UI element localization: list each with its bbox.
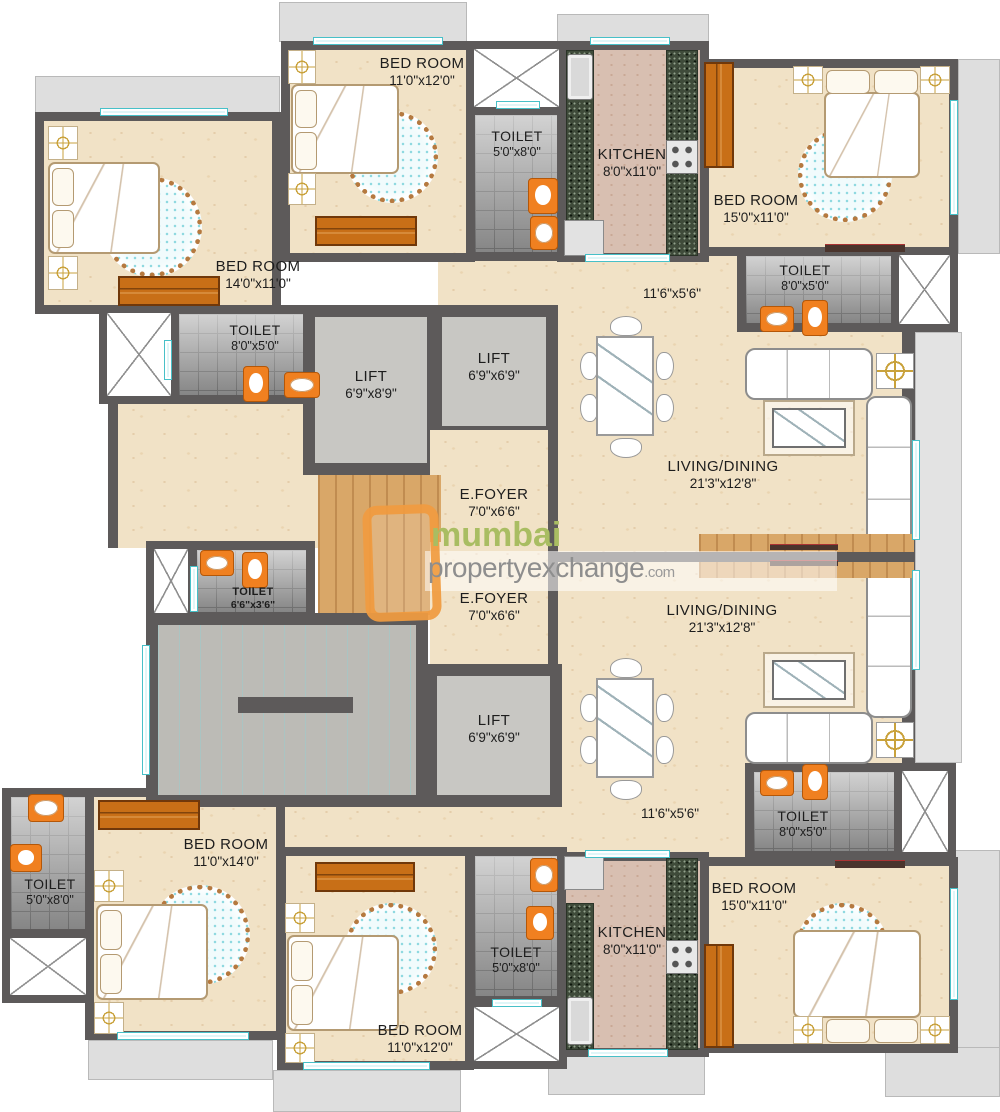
room-dim: 8'0"x5'0": [229, 339, 280, 354]
room-name: TOILET: [491, 128, 542, 145]
label-bedroom-top-right: BED ROOM 15'0"x11'0": [714, 192, 799, 226]
dining-chair: [610, 316, 642, 336]
label-passage-bottom: 11'6"x5'6": [641, 806, 699, 822]
watermark-tld: .com: [644, 564, 675, 581]
dining-table: [596, 336, 654, 436]
label-toilet-bottom-middle: TOILET 5'0"x8'0": [490, 944, 541, 975]
watermark-brand: mumbai: [431, 516, 561, 555]
room-name: TOILET: [777, 808, 828, 825]
label-bedroom-bottom-right: BED ROOM 15'0"x11'0": [712, 880, 797, 914]
label-living-top: LIVING/DINING 21'3"x12'8": [667, 458, 778, 492]
washbasin-icon: [530, 858, 558, 892]
pillow: [826, 70, 870, 94]
label-toilet-top: TOILET 5'0"x8'0": [491, 128, 542, 159]
dining-chair: [656, 352, 674, 380]
room-name: TOILET: [229, 322, 280, 339]
label-bedroom-bottom-left: BED ROOM 11'0"x14'0": [184, 836, 269, 870]
label-toilet-left: TOILET 8'0"x5'0": [229, 322, 280, 353]
corridor-top-entry: [438, 254, 563, 312]
bedside-table: [920, 66, 950, 94]
window: [117, 1032, 249, 1040]
pillow: [291, 941, 313, 981]
balcony-kitchen-bottom: [548, 1053, 705, 1095]
window: [950, 888, 958, 1000]
label-lift-c: LIFT 6'9"x6'9": [468, 712, 520, 746]
wc-icon: [528, 178, 558, 214]
room-dim: 6'9"x6'9": [468, 368, 520, 384]
wc-icon: [802, 764, 828, 800]
label-kitchen-top: KITCHEN 8'0"x11'0": [598, 146, 667, 180]
pillow: [52, 210, 74, 248]
stove-icon: [666, 140, 698, 174]
pillow: [295, 90, 317, 128]
label-kitchen-bottom: KITCHEN 8'0"x11'0": [598, 924, 667, 958]
window: [496, 101, 540, 109]
bedside-table: [94, 1002, 124, 1034]
bedside-table: [920, 1016, 950, 1044]
double-bed: [824, 92, 920, 178]
label-efoyer-bottom: E.FOYER 7'0"x6'6": [460, 590, 529, 624]
tv-unit: [835, 860, 905, 868]
wardrobe: [704, 62, 734, 168]
room-dim: 6'9"x8'9": [345, 386, 397, 402]
floor-plan: BED ROOM 11'0"x12'0" TOILET 5'0"x8'0" KI…: [0, 0, 1000, 1112]
sofa: [866, 396, 912, 552]
room-dim: 21'3"x12'8": [666, 620, 777, 636]
room-dim: 5'0"x8'0": [491, 145, 542, 160]
label-toilet-top-right: TOILET 8'0"x5'0": [779, 262, 830, 293]
tv-unit-top: [770, 544, 838, 550]
window: [313, 37, 443, 45]
wc-icon: [10, 844, 42, 872]
room-dim: 5'0"x8'0": [24, 893, 75, 908]
window: [585, 254, 670, 262]
label-bedroom-top-left: BED ROOM 11'0"x12'0": [380, 55, 465, 89]
pillow: [826, 1019, 870, 1043]
bedside-table: [288, 173, 316, 205]
ledge-right-middle: [915, 332, 962, 763]
sofa: [745, 712, 873, 764]
kitchen-sink-icon: [567, 997, 593, 1045]
window: [190, 566, 198, 612]
label-passage-top: 11'6"x5'6": [643, 286, 701, 302]
label-efoyer-top: E.FOYER 7'0"x6'6": [460, 486, 529, 520]
television: [772, 408, 846, 448]
bedside-table: [285, 903, 315, 933]
dining-chair: [610, 658, 642, 678]
washbasin-icon: [760, 770, 794, 796]
television: [772, 660, 846, 700]
room-name: TOILET: [490, 944, 541, 961]
duct-shaft-bottom-left: [2, 930, 94, 1003]
window: [164, 340, 172, 380]
window: [585, 850, 670, 858]
wc-icon: [802, 300, 828, 336]
wardrobe: [118, 276, 220, 306]
duct-shaft-bottom-right: [894, 763, 956, 860]
wc-icon: [243, 366, 269, 402]
bedside-table: [288, 50, 316, 84]
wardrobe: [315, 216, 417, 246]
room-name: LIFT: [468, 350, 520, 368]
bedside-table: [793, 66, 823, 94]
room-dim: 11'0"x14'0": [184, 854, 269, 870]
room-name: E.FOYER: [460, 590, 529, 608]
bedside-table: [94, 870, 124, 902]
planter-box: [876, 722, 914, 758]
dining-chair: [656, 736, 674, 764]
window: [142, 645, 150, 775]
stove-icon: [666, 940, 698, 974]
bedside-table: [285, 1033, 315, 1063]
window: [303, 1062, 430, 1070]
window: [588, 1049, 668, 1057]
label-bedroom-left: BED ROOM 14'0"x11'0": [216, 258, 301, 292]
dining-chair: [656, 694, 674, 722]
room-name: BED ROOM: [216, 258, 301, 276]
fridge-icon: [564, 856, 604, 890]
pillow: [100, 954, 122, 994]
label-toilet-middle: TOILET 6'6"x3'6": [231, 586, 275, 611]
window: [492, 999, 542, 1007]
room-dim: 11'6"x5'6": [641, 806, 699, 822]
duct-shaft-top-right: [891, 247, 958, 332]
window: [590, 37, 670, 45]
bedside-table: [48, 256, 78, 290]
room-name: LIVING/DINING: [667, 458, 778, 476]
pillow: [291, 985, 313, 1025]
pillow: [295, 132, 317, 170]
washbasin-icon: [28, 794, 64, 822]
double-bed: [793, 930, 921, 1018]
fridge-icon: [564, 220, 604, 256]
room-dim: 8'0"x11'0": [598, 164, 667, 180]
wardrobe: [315, 862, 415, 892]
window: [100, 108, 228, 116]
dining-chair: [610, 438, 642, 458]
room-name: BED ROOM: [712, 880, 797, 898]
room-name: TOILET: [231, 586, 275, 599]
room-name: LIFT: [468, 712, 520, 730]
dining-table: [596, 678, 654, 778]
wc-icon: [526, 906, 554, 940]
balcony-bottom-center: [273, 1070, 461, 1112]
duct-shaft-bottom-middle: [466, 999, 567, 1069]
room-name: BED ROOM: [184, 836, 269, 854]
room-name: KITCHEN: [598, 924, 667, 942]
balcony-top-right: [958, 59, 1000, 254]
room-dim: 15'0"x11'0": [714, 210, 799, 226]
room-name: LIFT: [345, 368, 397, 386]
stair-landing: [238, 697, 353, 713]
dining-chair: [610, 780, 642, 800]
balcony-bottom-left: [88, 1040, 273, 1080]
room-dim: 5'0"x8'0": [490, 961, 541, 976]
window: [950, 100, 958, 215]
balcony-top-center: [279, 2, 467, 42]
room-name: BED ROOM: [714, 192, 799, 210]
bedside-table: [48, 126, 78, 160]
room-name: BED ROOM: [380, 55, 465, 73]
dining-chair: [656, 394, 674, 422]
room-name: E.FOYER: [460, 486, 529, 504]
wardrobe: [98, 800, 200, 830]
room-dim: 11'0"x12'0": [380, 73, 465, 89]
tv-unit: [825, 244, 905, 252]
room-dim: 8'0"x5'0": [779, 279, 830, 294]
kitchen-sink-icon: [567, 54, 593, 100]
watermark-domain: propertyexchange.com: [428, 552, 675, 584]
room-dim: 11'6"x5'6": [643, 286, 701, 302]
room-name: BED ROOM: [378, 1022, 463, 1040]
label-toilet-bottom-right: TOILET 8'0"x5'0": [777, 808, 828, 839]
room-dim: 8'0"x5'0": [777, 825, 828, 840]
washbasin-icon: [284, 372, 320, 398]
room-dim: 8'0"x11'0": [598, 942, 667, 958]
label-living-bottom: LIVING/DINING 21'3"x12'8": [666, 602, 777, 636]
pillow: [100, 910, 122, 950]
pillow: [874, 70, 918, 94]
pillow: [874, 1019, 918, 1043]
label-lift-b: LIFT 6'9"x6'9": [468, 350, 520, 384]
label-bedroom-bottom-middle: BED ROOM 11'0"x12'0": [378, 1022, 463, 1056]
room-dim: 6'9"x6'9": [468, 730, 520, 746]
planter-box: [876, 353, 914, 389]
washbasin-icon: [530, 216, 558, 250]
duct-shaft-middle: [146, 541, 196, 621]
room-dim: 11'0"x12'0": [378, 1040, 463, 1056]
room-dim: 15'0"x11'0": [712, 898, 797, 914]
window: [912, 440, 920, 540]
room-name: KITCHEN: [598, 146, 667, 164]
room-name: TOILET: [779, 262, 830, 279]
room-name: TOILET: [24, 876, 75, 893]
pillow: [52, 168, 74, 206]
washbasin-icon: [200, 550, 234, 576]
room-dim: 21'3"x12'8": [667, 476, 778, 492]
room-dim: 7'0"x6'6": [460, 608, 529, 624]
room-name: LIVING/DINING: [666, 602, 777, 620]
balcony-bottom-right-corner: [885, 1047, 1000, 1097]
sofa: [866, 566, 912, 718]
wardrobe: [704, 944, 734, 1048]
window: [912, 570, 920, 670]
room-dim: 14'0"x11'0": [216, 276, 301, 292]
label-lift-a: LIFT 6'9"x8'9": [345, 368, 397, 402]
sofa: [745, 348, 873, 400]
bedside-table: [793, 1016, 823, 1044]
room-dim: 6'6"x3'6": [231, 599, 275, 611]
wc-icon: [242, 552, 268, 588]
watermark-domain-text: propertyexchange: [428, 552, 644, 583]
label-toilet-bottom-left: TOILET 5'0"x8'0": [24, 876, 75, 907]
washbasin-icon: [760, 306, 794, 332]
balcony-bottom-right: [953, 850, 1000, 1050]
